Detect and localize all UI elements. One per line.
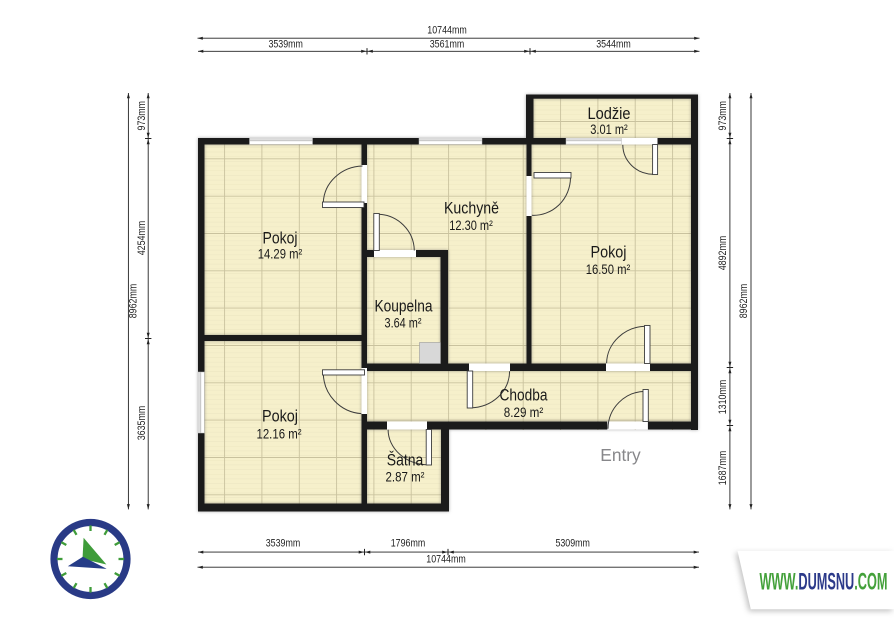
svg-text:Šatna: Šatna (387, 451, 424, 470)
svg-text:12.30 m²: 12.30 m² (449, 218, 493, 233)
svg-text:Pokoj: Pokoj (262, 406, 298, 425)
svg-text:10744mm: 10744mm (427, 25, 467, 37)
svg-text:Entry: Entry (600, 445, 641, 465)
svg-text:Chodba: Chodba (500, 385, 548, 404)
svg-text:Kuchyně: Kuchyně (444, 199, 499, 218)
svg-text:14.29 m²: 14.29 m² (258, 247, 303, 262)
svg-text:3544mm: 3544mm (596, 38, 631, 50)
svg-text:5309mm: 5309mm (555, 538, 590, 550)
svg-text:4254mm: 4254mm (136, 221, 148, 256)
svg-text:Pokoj: Pokoj (263, 229, 298, 248)
svg-text:10744mm: 10744mm (426, 554, 466, 566)
svg-text:4892mm: 4892mm (717, 236, 729, 271)
svg-text:16.50 m²: 16.50 m² (586, 262, 631, 277)
svg-text:12.16 m²: 12.16 m² (257, 427, 302, 442)
svg-text:8962mm: 8962mm (127, 284, 139, 319)
svg-text:Pokoj: Pokoj (591, 242, 627, 261)
svg-text:Koupelna: Koupelna (375, 296, 433, 315)
svg-text:8.29 m²: 8.29 m² (504, 405, 544, 420)
svg-text:3561mm: 3561mm (430, 38, 465, 50)
svg-text:Lodžie: Lodžie (588, 104, 631, 123)
svg-text:973mm: 973mm (717, 101, 729, 131)
svg-text:1687mm: 1687mm (717, 451, 729, 486)
svg-text:3.64 m²: 3.64 m² (385, 316, 422, 331)
svg-text:3635mm: 3635mm (136, 406, 148, 441)
svg-text:1796mm: 1796mm (391, 538, 426, 550)
svg-text:1310mm: 1310mm (717, 380, 729, 415)
svg-text:973mm: 973mm (136, 101, 148, 131)
svg-text:2.87 m²: 2.87 m² (386, 470, 425, 485)
svg-text:3.01 m²: 3.01 m² (590, 122, 628, 137)
svg-text:WWW.DUMSNU.COM: WWW.DUMSNU.COM (760, 568, 888, 595)
svg-text:8962mm: 8962mm (738, 284, 750, 319)
svg-text:3539mm: 3539mm (266, 538, 301, 550)
svg-text:3539mm: 3539mm (268, 38, 303, 50)
